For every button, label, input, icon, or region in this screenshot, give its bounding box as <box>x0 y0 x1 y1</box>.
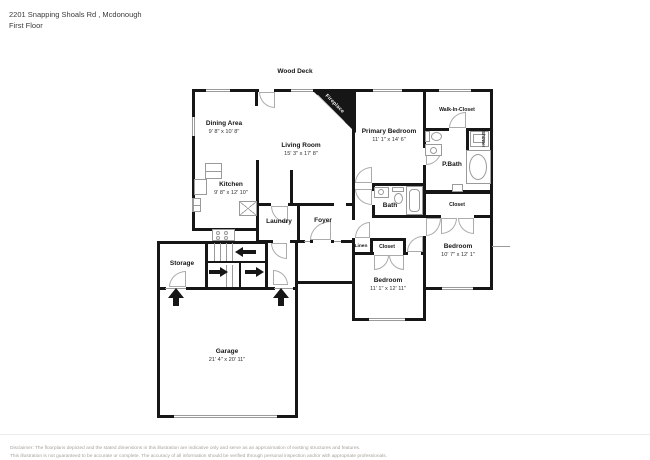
stair-direction-arrow <box>220 267 228 277</box>
wall <box>474 215 493 218</box>
wall <box>278 298 284 306</box>
door-swing-arc <box>169 271 186 287</box>
wall <box>245 270 256 274</box>
fixture-line <box>232 243 233 261</box>
wall <box>157 241 208 244</box>
sidelight-marker <box>334 241 341 242</box>
pantry-symbol <box>239 201 257 216</box>
wall <box>423 89 426 130</box>
wall <box>402 89 439 92</box>
window-marker <box>439 89 471 92</box>
fireplace: Fireplace <box>313 91 356 133</box>
fixture-detail <box>216 231 220 235</box>
wall <box>352 252 374 255</box>
wall <box>209 270 220 274</box>
window-marker <box>442 287 473 290</box>
room-label-closet-mid: Closet <box>379 243 395 251</box>
wall <box>239 263 241 287</box>
wall <box>186 287 275 290</box>
wall <box>208 241 268 244</box>
fixture-detail <box>469 154 487 180</box>
window-marker <box>291 89 313 92</box>
disclaimer-line-2: This illustration is not guaranteed to b… <box>10 454 387 459</box>
floor-plan-page: 2201 Snapping Shoals Rd , Mcdonough Firs… <box>0 0 650 460</box>
fridge-symbol <box>194 179 207 195</box>
room-label-primary-bedroom: Primary Bedroom 11' 1" x 14' 6" <box>362 128 417 144</box>
toilet-symbol <box>425 131 430 142</box>
sink-symbol <box>452 184 463 192</box>
wall <box>256 203 271 206</box>
door-swing-arc <box>458 218 474 234</box>
wall <box>372 215 426 218</box>
wall <box>423 236 426 321</box>
door-swing-arc <box>426 218 441 236</box>
fixture-detail <box>378 189 384 195</box>
floor-plan-drawing: Wood Deck <box>0 0 650 460</box>
door-swing-arc <box>355 167 372 183</box>
room-label-dining-area: Dining Area 9' 8" x 10' 8" <box>206 120 242 136</box>
wall <box>243 250 256 254</box>
room-label-shower: Shower <box>473 127 486 151</box>
fixture-line <box>220 243 221 261</box>
stair-direction-arrow <box>235 247 243 257</box>
wall <box>288 203 334 206</box>
wall <box>192 89 195 117</box>
room-label-bath: Bath <box>383 202 397 210</box>
window-marker <box>192 117 195 136</box>
wall <box>405 318 426 321</box>
room-label-kitchen: Kitchen 9' 8" x 12' 10" <box>214 181 248 197</box>
door-swing-arc <box>389 255 404 270</box>
wall <box>157 241 160 418</box>
fixture-line <box>214 243 215 261</box>
door-swing-arc <box>259 92 275 108</box>
room-label-storage: Storage <box>170 260 194 268</box>
fixture-line <box>193 205 201 206</box>
room-label-walk-in-closet: Walk-In-Closet <box>439 106 475 114</box>
wall <box>370 238 403 241</box>
room-label-closet-right: Closet <box>449 201 465 209</box>
wall <box>290 170 293 206</box>
wall <box>205 241 208 289</box>
door-swing-arc <box>273 270 288 285</box>
toilet-symbol <box>392 187 404 192</box>
door-swing-arc <box>374 255 389 270</box>
fixture-line <box>205 171 222 172</box>
wall <box>295 281 355 284</box>
wall <box>277 415 298 418</box>
disclaimer-line-1: Disclaimer: The floorplans depicted and … <box>10 446 360 451</box>
fixture-detail <box>224 231 228 235</box>
room-label-foyer: Foyer <box>314 217 332 225</box>
sidelight-marker <box>304 241 310 242</box>
room-label-garage: Garage 21' 4" x 20' 11" <box>209 348 245 364</box>
fixture-detail <box>409 189 420 212</box>
wall <box>295 240 298 418</box>
wall <box>466 128 469 151</box>
wall <box>404 252 408 255</box>
door-swing-arc <box>355 189 372 205</box>
wall <box>274 89 291 92</box>
porch-edge-line <box>492 246 510 247</box>
door-swing-arc <box>441 218 457 234</box>
footer-divider <box>0 434 650 435</box>
room-label-living-room: Living Room 15' 3" x 17' 8" <box>281 142 320 158</box>
room-label-laundry: Laundry <box>266 218 292 226</box>
door-swing-arc <box>407 236 423 252</box>
window-marker <box>369 318 405 321</box>
garage-door-marker <box>174 415 277 418</box>
wall <box>265 241 268 289</box>
room-label-linen: Linen <box>355 243 368 251</box>
wood-deck-label: Wood Deck <box>277 68 312 75</box>
room-label-bedroom-mid: Bedroom 11' 1" x 12' 11" <box>370 277 406 293</box>
wall <box>421 252 426 255</box>
door-swing-arc <box>449 112 466 128</box>
wall <box>297 203 300 243</box>
wall <box>173 298 179 306</box>
fixture-detail <box>216 236 220 240</box>
room-label-bedroom-right: Bedroom 10' 7" x 12' 1" <box>441 243 475 259</box>
fixture-detail <box>224 236 228 240</box>
door-swing-arc <box>271 243 287 259</box>
window-marker <box>373 89 402 92</box>
fixture-line <box>232 265 233 287</box>
wall <box>352 318 369 321</box>
door-swing-arc <box>355 222 370 238</box>
wall <box>352 203 355 220</box>
wall <box>473 287 493 290</box>
window-marker <box>206 89 230 92</box>
wall <box>310 240 313 243</box>
wall <box>423 287 442 290</box>
fixture-detail <box>430 147 437 154</box>
wall <box>208 261 265 263</box>
fixture-line <box>226 243 227 261</box>
room-label-pbath: P.Bath <box>442 161 462 169</box>
wall <box>255 89 258 106</box>
stair-direction-arrow <box>256 267 264 277</box>
fixture-detail <box>431 132 442 141</box>
wall <box>157 415 174 418</box>
